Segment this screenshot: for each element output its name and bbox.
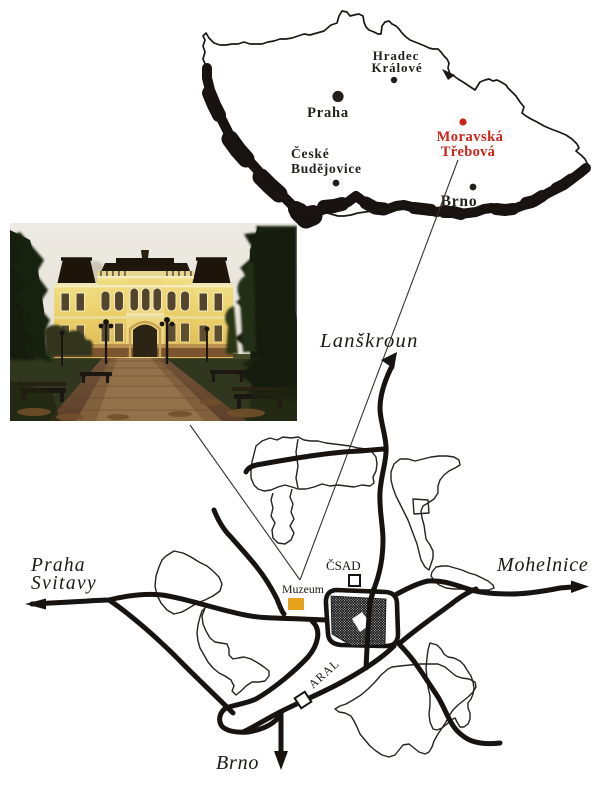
svg-text:Brno: Brno bbox=[216, 752, 259, 774]
svg-text:Praha: Praha bbox=[307, 105, 349, 121]
svg-text:Muzeum: Muzeum bbox=[282, 582, 324, 596]
svg-text:České: České bbox=[291, 146, 330, 161]
svg-text:Lanškroun: Lanškroun bbox=[319, 330, 419, 352]
svg-text:ČSAD: ČSAD bbox=[326, 558, 361, 573]
svg-text:Brno: Brno bbox=[441, 193, 478, 210]
svg-text:Králové: Králové bbox=[371, 60, 422, 75]
svg-text:Svitavy: Svitavy bbox=[31, 573, 97, 594]
svg-text:Budějovice: Budějovice bbox=[291, 161, 362, 176]
svg-text:Mohelnice: Mohelnice bbox=[496, 554, 589, 576]
svg-text:Třebová: Třebová bbox=[441, 144, 496, 160]
svg-text:Moravská: Moravská bbox=[437, 129, 504, 145]
